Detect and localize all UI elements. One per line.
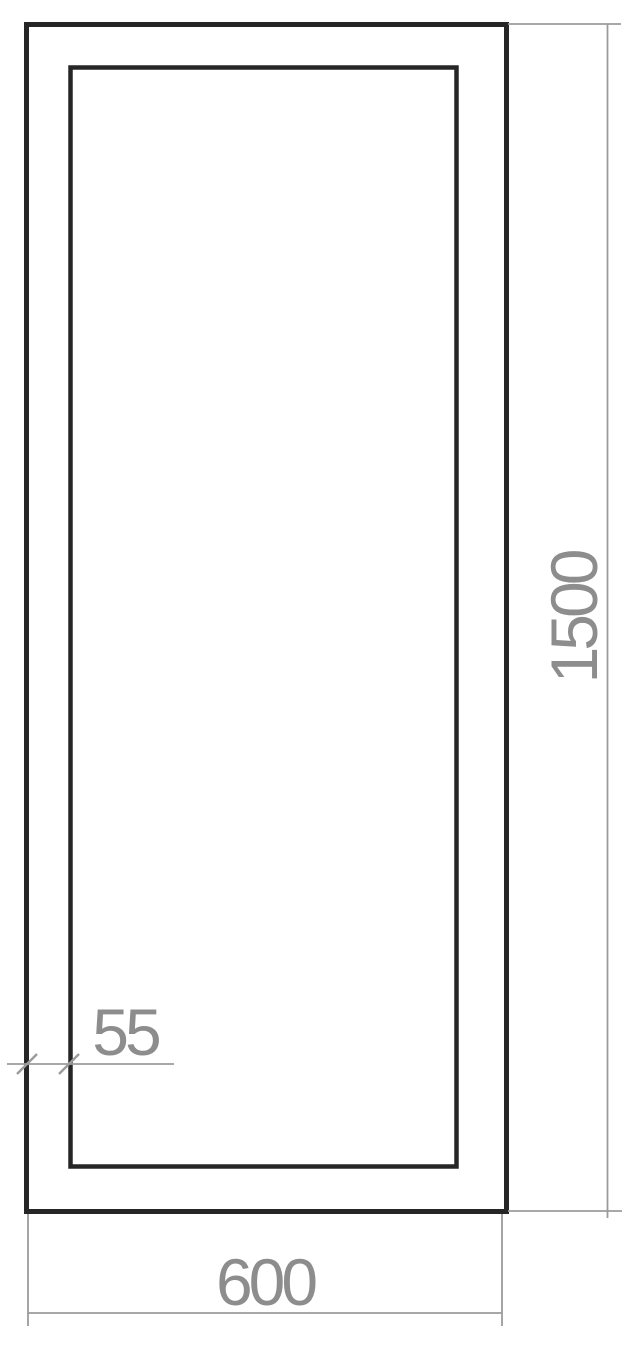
height-dimension-label: 1500 xyxy=(537,550,611,683)
width-dimension-label: 600 xyxy=(216,1245,316,1319)
dimension-lines-layer xyxy=(7,24,622,1326)
dimension-labels-layer: 1500 600 55 xyxy=(92,550,611,1319)
frame-dimension-drawing: 1500 600 55 xyxy=(0,0,636,1349)
frame-thickness-label: 55 xyxy=(92,995,159,1069)
technical-drawing-canvas: 1500 600 55 xyxy=(0,0,636,1349)
